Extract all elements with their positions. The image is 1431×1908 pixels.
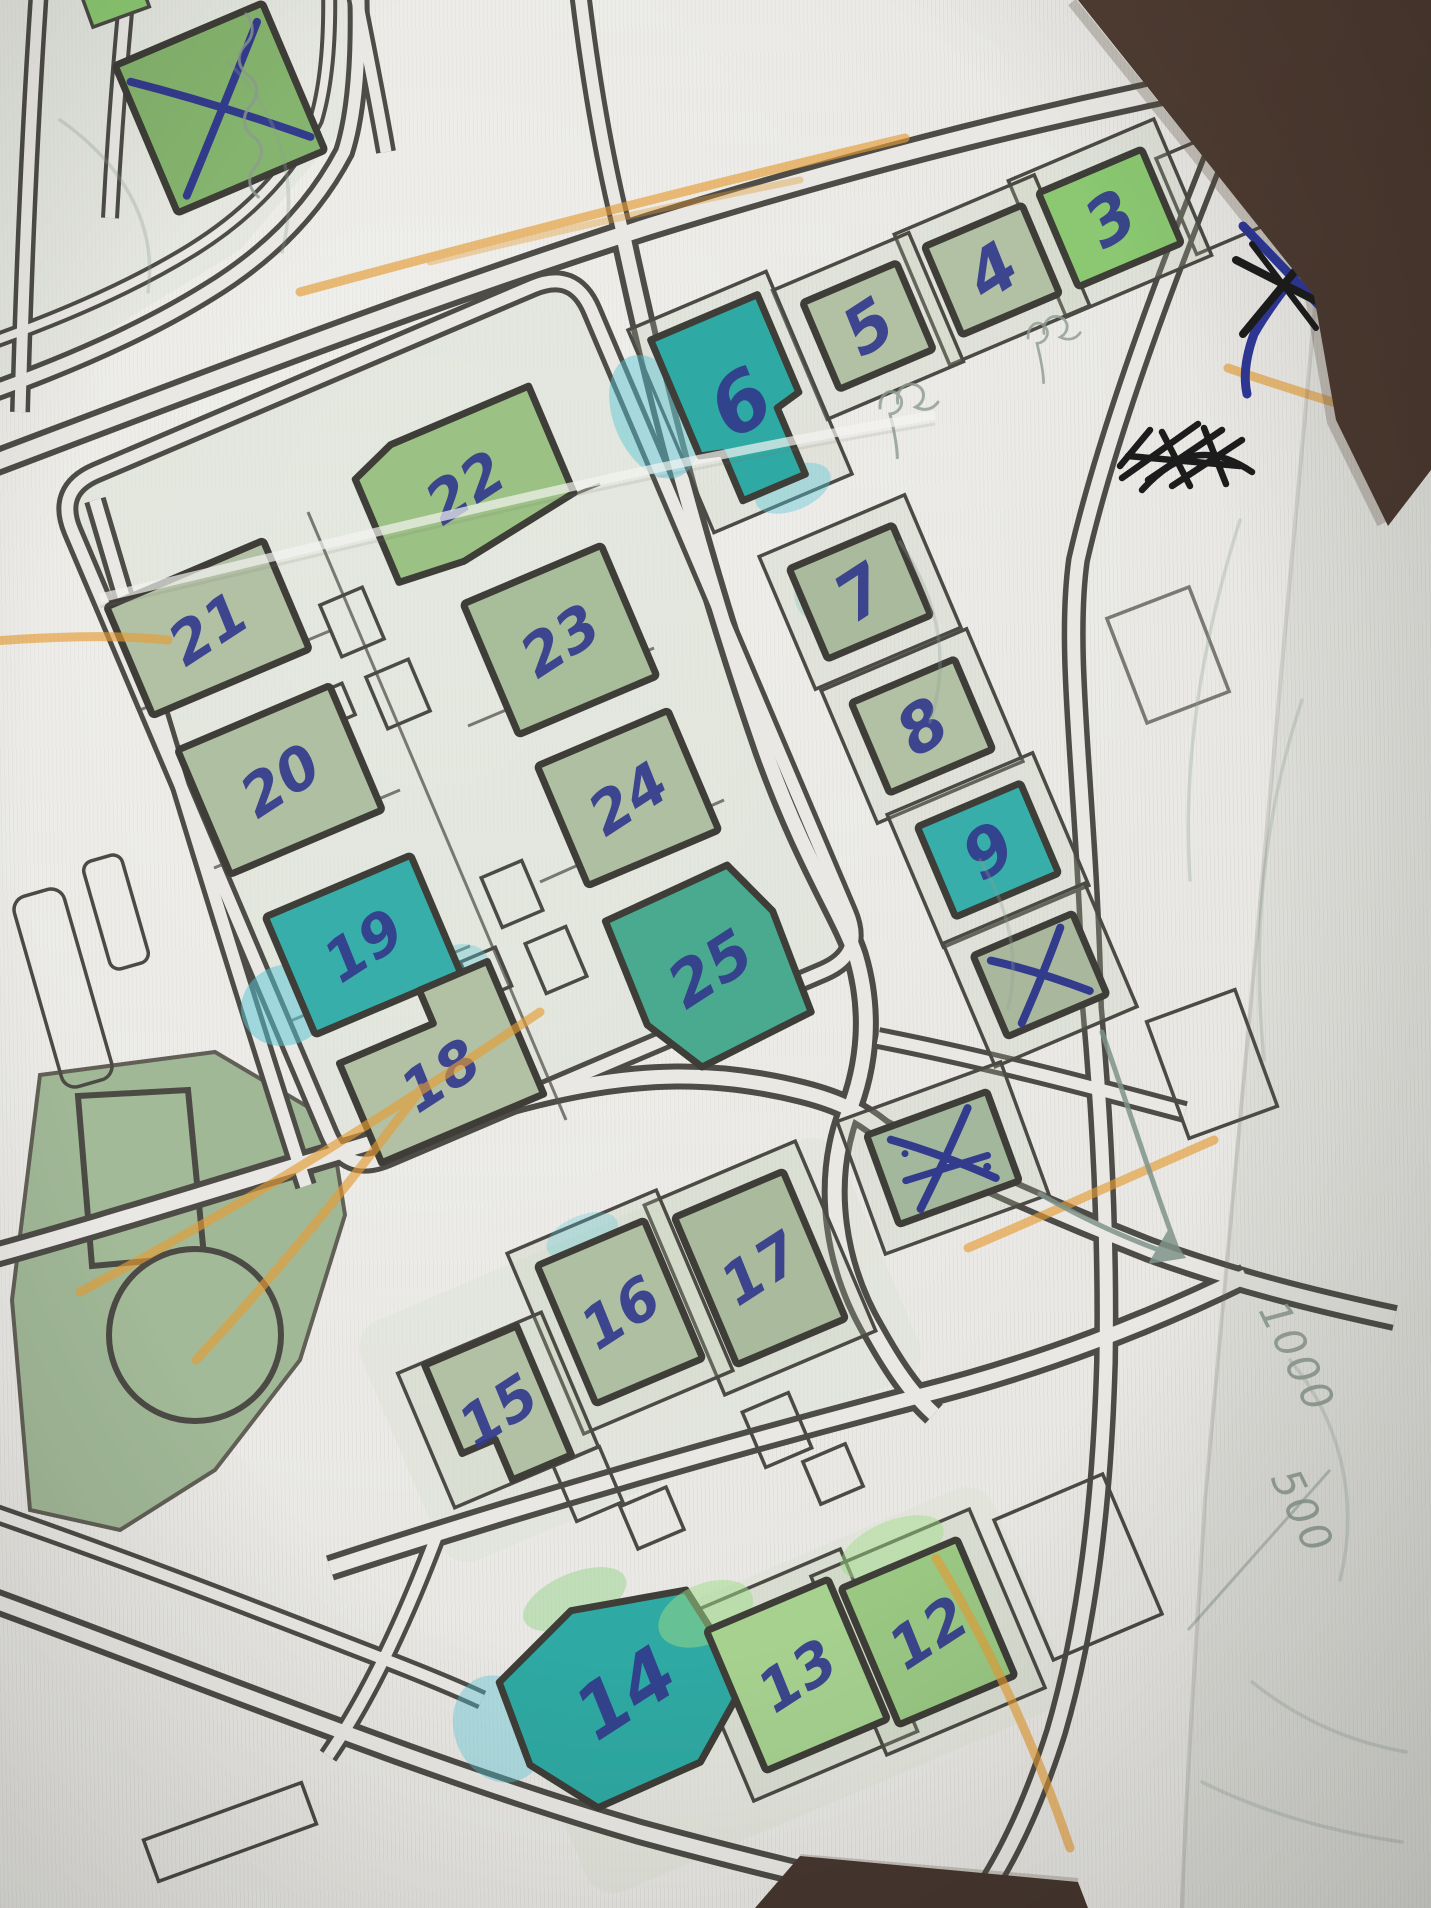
map-paper-sheet: 34567892223242521201918171615141312 [0, 0, 1431, 1908]
photo-of-annotated-paper-map: { "photo": { "scene": "hand-annotated pr… [0, 0, 1431, 1908]
park-trapezoid-structure [78, 1090, 204, 1266]
map-photo-svg: 34567892223242521201918171615141312 [0, 0, 1431, 1908]
park-circle-feature [109, 1249, 281, 1421]
black-scribble [1120, 424, 1252, 490]
